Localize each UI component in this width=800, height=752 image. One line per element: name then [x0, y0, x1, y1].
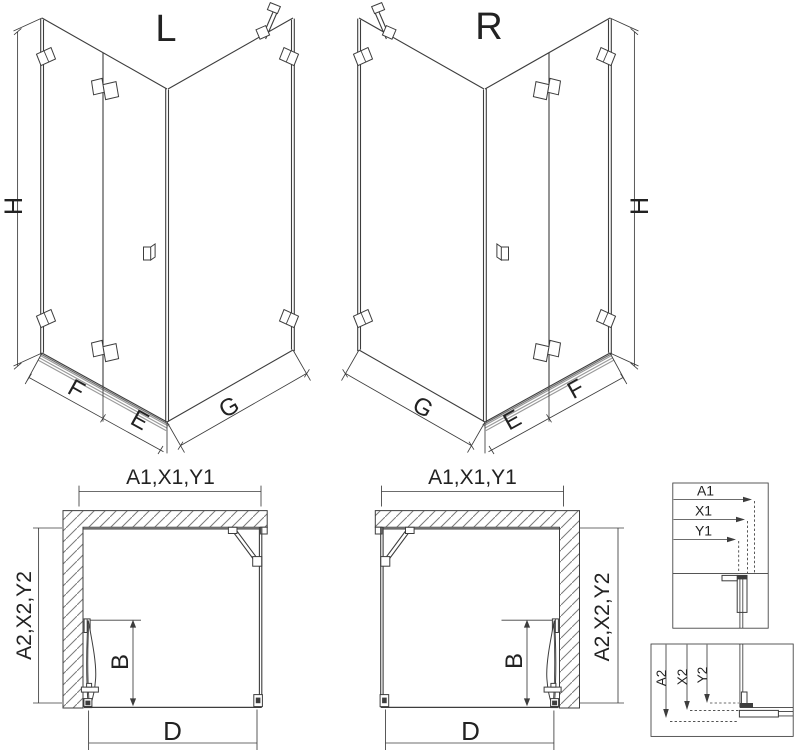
dim-label-side-right: G — [408, 391, 438, 424]
plan-door-label-right: B — [501, 653, 528, 669]
plan-front-label-right: D — [461, 716, 480, 746]
detail-x2-label: X2 — [675, 669, 690, 686]
plan-front-label-left: D — [163, 716, 182, 746]
dim-label-side-left: G — [214, 391, 244, 424]
profile-section — [737, 575, 747, 612]
plan-depth-label-left: A2,X2,Y2 — [13, 571, 36, 660]
detail-a2-label: A2 — [654, 670, 669, 687]
detail-depth-offsets: A2 X2 Y2 — [651, 644, 793, 736]
3d-geometry-left — [14, 3, 311, 454]
detail-a1-label: A1 — [697, 483, 714, 499]
detail-width-offsets: A1 X1 Y1 — [673, 483, 768, 629]
dim-label-door-left: E — [126, 405, 153, 436]
3d-view-right: R H F E G — [342, 3, 655, 454]
detail-box — [673, 483, 768, 628]
variant-label-right: R — [475, 6, 502, 48]
plan-door-label-left: B — [107, 654, 134, 670]
detail-y2-label: Y2 — [695, 667, 710, 684]
dim-label-fixed-left: F — [63, 374, 89, 405]
detail-y1-label: Y1 — [695, 523, 712, 539]
plan-width-label-right: A1,X1,Y1 — [428, 466, 517, 489]
dim-label-height-left: H — [0, 197, 28, 215]
3d-view-left: L H F E G — [0, 3, 311, 454]
plan-width-label-left: A1,X1,Y1 — [126, 466, 215, 489]
plan-view-left: A1,X1,Y1 A2,X2,Y2 B D — [13, 466, 267, 750]
detail-box — [651, 644, 793, 736]
plan-depth-label-right: A2,X2,Y2 — [591, 573, 614, 662]
shower-enclosure-technical-drawing: L H F E G R H F E G A1,X1,Y1 A2,X2,Y2 B … — [0, 0, 800, 752]
dim-label-door-right: E — [499, 405, 526, 436]
dim-label-height-right: H — [626, 197, 654, 215]
diagram-svg: L H F E G R H F E G A1,X1,Y1 A2,X2,Y2 B … — [0, 0, 800, 752]
detail-x1-label: X1 — [695, 503, 712, 519]
3d-geometry-right — [342, 3, 639, 454]
variant-label-left: L — [155, 8, 176, 50]
plan-view-right: A1,X1,Y1 A2,X2,Y2 B D — [375, 466, 624, 750]
dim-label-fixed-right: F — [563, 374, 589, 405]
